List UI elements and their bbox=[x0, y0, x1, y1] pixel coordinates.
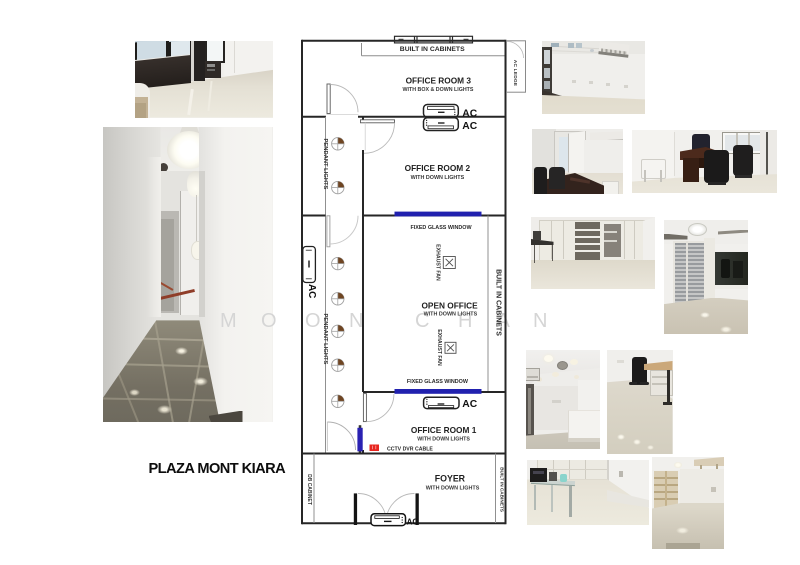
svg-text:FIXED GLASS WINDOW: FIXED GLASS WINDOW bbox=[407, 379, 469, 385]
svg-text:FOYER: FOYER bbox=[435, 474, 466, 484]
svg-text:WITH DOWN LIGHTS: WITH DOWN LIGHTS bbox=[417, 436, 470, 442]
svg-text:PENDANT LIGHTS: PENDANT LIGHTS bbox=[322, 139, 328, 190]
svg-text:AC LEDGE: AC LEDGE bbox=[512, 60, 518, 87]
svg-text:BUILT IN CABINETS: BUILT IN CABINETS bbox=[499, 467, 504, 512]
svg-text:CCTV DVR CABLE: CCTV DVR CABLE bbox=[387, 447, 433, 453]
svg-text:WITH DOWN LIGHTS: WITH DOWN LIGHTS bbox=[424, 312, 478, 318]
svg-text:OFFICE ROOM 2: OFFICE ROOM 2 bbox=[405, 163, 471, 173]
svg-text:WITH DOWN LIGHTS: WITH DOWN LIGHTS bbox=[426, 485, 480, 491]
svg-text:DB CABINET: DB CABINET bbox=[306, 474, 312, 505]
svg-text:OPEN OFFICE: OPEN OFFICE bbox=[421, 300, 478, 310]
svg-text:AC: AC bbox=[407, 518, 419, 527]
svg-text:BUILT IN CABINETS: BUILT IN CABINETS bbox=[494, 269, 501, 336]
svg-text:WITH DOWN LIGHTS: WITH DOWN LIGHTS bbox=[411, 175, 465, 181]
svg-text:BUILT IN CABINETS: BUILT IN CABINETS bbox=[400, 46, 465, 53]
svg-text:WITH BOX & DOWN LIGHTS: WITH BOX & DOWN LIGHTS bbox=[403, 87, 474, 93]
svg-text:AC: AC bbox=[462, 399, 477, 410]
svg-text:PENDANT LIGHTS: PENDANT LIGHTS bbox=[322, 314, 328, 365]
svg-text:EXHAUST FAN: EXHAUST FAN bbox=[434, 244, 440, 281]
svg-text:AC: AC bbox=[462, 121, 477, 132]
svg-text:OFFICE ROOM 3: OFFICE ROOM 3 bbox=[406, 75, 472, 85]
svg-text:OFFICE ROOM 1: OFFICE ROOM 1 bbox=[411, 425, 477, 435]
svg-text:AC: AC bbox=[306, 284, 317, 298]
svg-text:FIXED GLASS WINDOW: FIXED GLASS WINDOW bbox=[410, 225, 472, 231]
svg-text:EXHAUST FAN: EXHAUST FAN bbox=[436, 329, 442, 366]
svg-text:AC: AC bbox=[462, 109, 477, 120]
